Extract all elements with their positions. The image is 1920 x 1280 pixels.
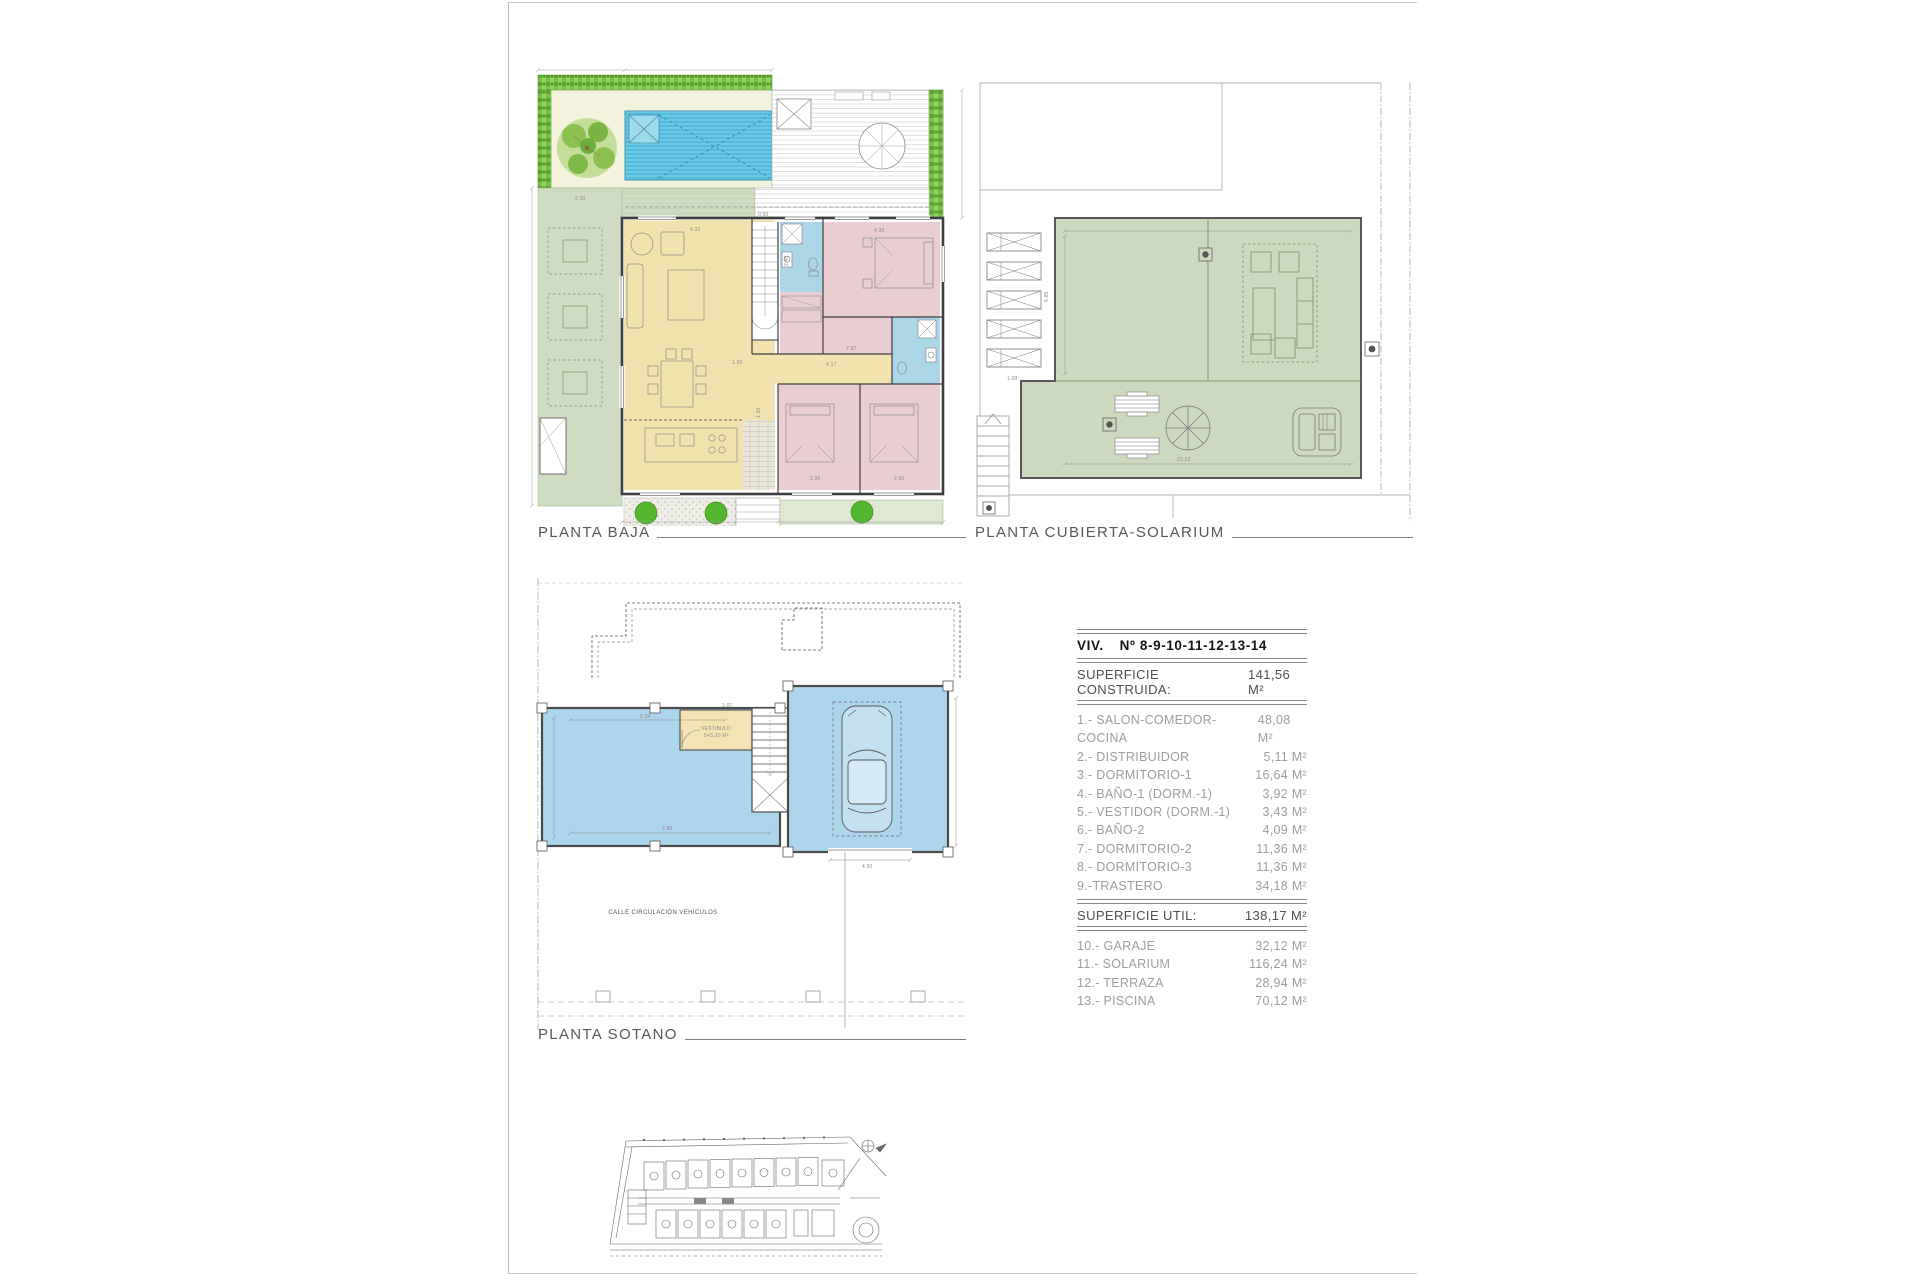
bush-icon [851, 501, 873, 523]
table-row: 12.- TERRAZA28,94 M² [1077, 974, 1307, 992]
svg-text:5.85: 5.85 [1044, 291, 1050, 302]
table-row: 13.- PISCINA70,12 M² [1077, 992, 1307, 1010]
svg-text:0.50: 0.50 [758, 212, 769, 218]
hedge-top [538, 75, 772, 90]
table-row: 5.- VESTIDOR (DORM.-1)3,43 M² [1077, 803, 1307, 821]
table-row: 1.- SALON-COMEDOR-COCINA48,08 M² [1077, 711, 1307, 748]
svg-text:2.00: 2.00 [575, 196, 586, 202]
corridor [775, 354, 892, 384]
util-items: 10.- GARAJE32,12 M² 11.- SOLARIUM116,24 … [1077, 937, 1307, 1011]
table-rule [1077, 700, 1307, 705]
svg-text:2.90: 2.90 [810, 476, 821, 482]
tree-symbol-icon [862, 1140, 886, 1152]
drain-icon [1365, 342, 1379, 356]
svg-text:4.33: 4.33 [690, 227, 701, 233]
table-title: VIV. Nº 8-9-10-11-12-13-14 [1077, 634, 1307, 658]
parasol-icon [1166, 406, 1210, 450]
plan-label-planta-baja: PLANTA BAJA [538, 524, 966, 541]
svg-text:1.50: 1.50 [756, 407, 762, 418]
street: CALLE CIRCULACIÓN VEHÍCULOS [538, 852, 965, 1028]
pool [625, 111, 772, 180]
bedroom-2 [778, 384, 860, 490]
site-entry-structure [628, 1190, 734, 1224]
svg-text:2.90: 2.90 [894, 476, 905, 482]
plan-label-planta-sotano: PLANTA SOTANO [538, 1026, 966, 1043]
bush-icon [635, 502, 657, 524]
drain-icon [1199, 248, 1212, 261]
house [619, 215, 945, 496]
table-row: 10.- GARAJE32,12 M² [1077, 937, 1307, 955]
table-rule [1077, 926, 1307, 931]
vestidor [780, 292, 823, 354]
table-row: 11.- SOLARIUM116,24 M² [1077, 955, 1307, 973]
plan-label-text: PLANTA BAJA [538, 524, 650, 541]
svg-text:1.07: 1.07 [722, 703, 733, 709]
svg-text:7.87: 7.87 [846, 346, 857, 352]
drain-icon [1103, 418, 1116, 431]
sunbeds [987, 233, 1041, 367]
svg-text:S=3,20 M²: S=3,20 M² [703, 733, 728, 739]
bedroom-1 [823, 222, 940, 317]
svg-text:5.34: 5.34 [640, 714, 651, 720]
street-label: CALLE CIRCULACIÓN VEHÍCULOS [608, 909, 717, 916]
svg-text:1.00: 1.00 [1007, 376, 1018, 382]
hedge-left [538, 90, 551, 188]
vestibulo: VESTIBULO S=3,20 M² [680, 710, 752, 750]
car-icon [842, 706, 892, 832]
side-terrace [538, 188, 622, 506]
superficie-util-row: SUPERFICIE UTIL: 138,17 M² [1077, 904, 1307, 926]
table-row: 3.- DORMITORIO-116,64 M² [1077, 766, 1307, 784]
entry-hall [743, 420, 775, 490]
table-row: 6.- BAÑO-24,09 M² [1077, 821, 1307, 839]
plots-row-top [644, 1158, 844, 1191]
basement-stairs [752, 708, 788, 812]
label-underline [685, 1039, 966, 1040]
hedge-right [929, 90, 943, 218]
plan-planta-sotano: VESTIBULO S=3,20 M² [530, 578, 970, 1030]
bedroom-3 [860, 384, 940, 490]
bush-icon [705, 502, 727, 524]
upper-floor-footprint [592, 603, 960, 678]
site-plan [598, 1128, 890, 1260]
svg-text:2.45: 2.45 [784, 255, 790, 266]
plan-label-text: PLANTA CUBIERTA-SOLARIUM [975, 524, 1225, 541]
table-row: 2.- DISTRIBUIDOR5,11 M² [1077, 748, 1307, 766]
table-row: 7.- DORMITORIO-211,36 M² [1077, 840, 1307, 858]
solarium: 23.23 [1021, 218, 1361, 478]
svg-text:23.23: 23.23 [1177, 457, 1191, 463]
areas-table: VIV. Nº 8-9-10-11-12-13-14 SUPERFICIE CO… [1077, 629, 1307, 1015]
basement: VESTIBULO S=3,20 M² [537, 681, 958, 870]
tree [557, 118, 617, 178]
roof-access-stairs [977, 414, 1009, 516]
table-row: 8.- DORMITORIO-311,36 M² [1077, 858, 1307, 876]
table-row: 9.-TRASTERO34,18 M² [1077, 877, 1307, 895]
svg-text:4.17: 4.17 [826, 362, 837, 368]
plan-planta-baja: 2.00 4.33 0.50 2.45 4.30 4.17 1.00 7.87 … [530, 66, 970, 526]
roundabout [850, 1198, 880, 1243]
plots-row-bottom [656, 1210, 834, 1238]
plan-label-text: PLANTA SOTANO [538, 1026, 678, 1043]
garage [788, 686, 948, 854]
svg-text:1.00: 1.00 [732, 360, 743, 366]
table-title-numbers: Nº 8-9-10-11-12-13-14 [1120, 638, 1267, 653]
table-title-viv: VIV. [1077, 638, 1104, 653]
superficie-construida-row: SUPERFICIE CONSTRUIDA: 141,56 M² [1077, 663, 1307, 700]
plan-planta-cubierta: 1.00 5.85 [975, 66, 1415, 526]
svg-text:VESTIBULO: VESTIBULO [701, 726, 731, 732]
spiral-stair-icon [859, 123, 905, 169]
construida-items: 1.- SALON-COMEDOR-COCINA48,08 M² 2.- DIS… [1077, 711, 1307, 895]
svg-text:4.30: 4.30 [874, 228, 885, 234]
svg-text:2.80: 2.80 [662, 826, 673, 832]
label-underline [657, 537, 966, 538]
label-underline [1232, 537, 1413, 538]
plan-label-planta-cubierta: PLANTA CUBIERTA-SOLARIUM [975, 524, 1413, 541]
side-shed [540, 418, 566, 474]
svg-text:4.50: 4.50 [862, 864, 873, 870]
table-row: 4.- BAÑO-1 (DORM.-1)3,92 M² [1077, 785, 1307, 803]
drawing-canvas: 2.00 4.33 0.50 2.45 4.30 4.17 1.00 7.87 … [0, 0, 1920, 1280]
